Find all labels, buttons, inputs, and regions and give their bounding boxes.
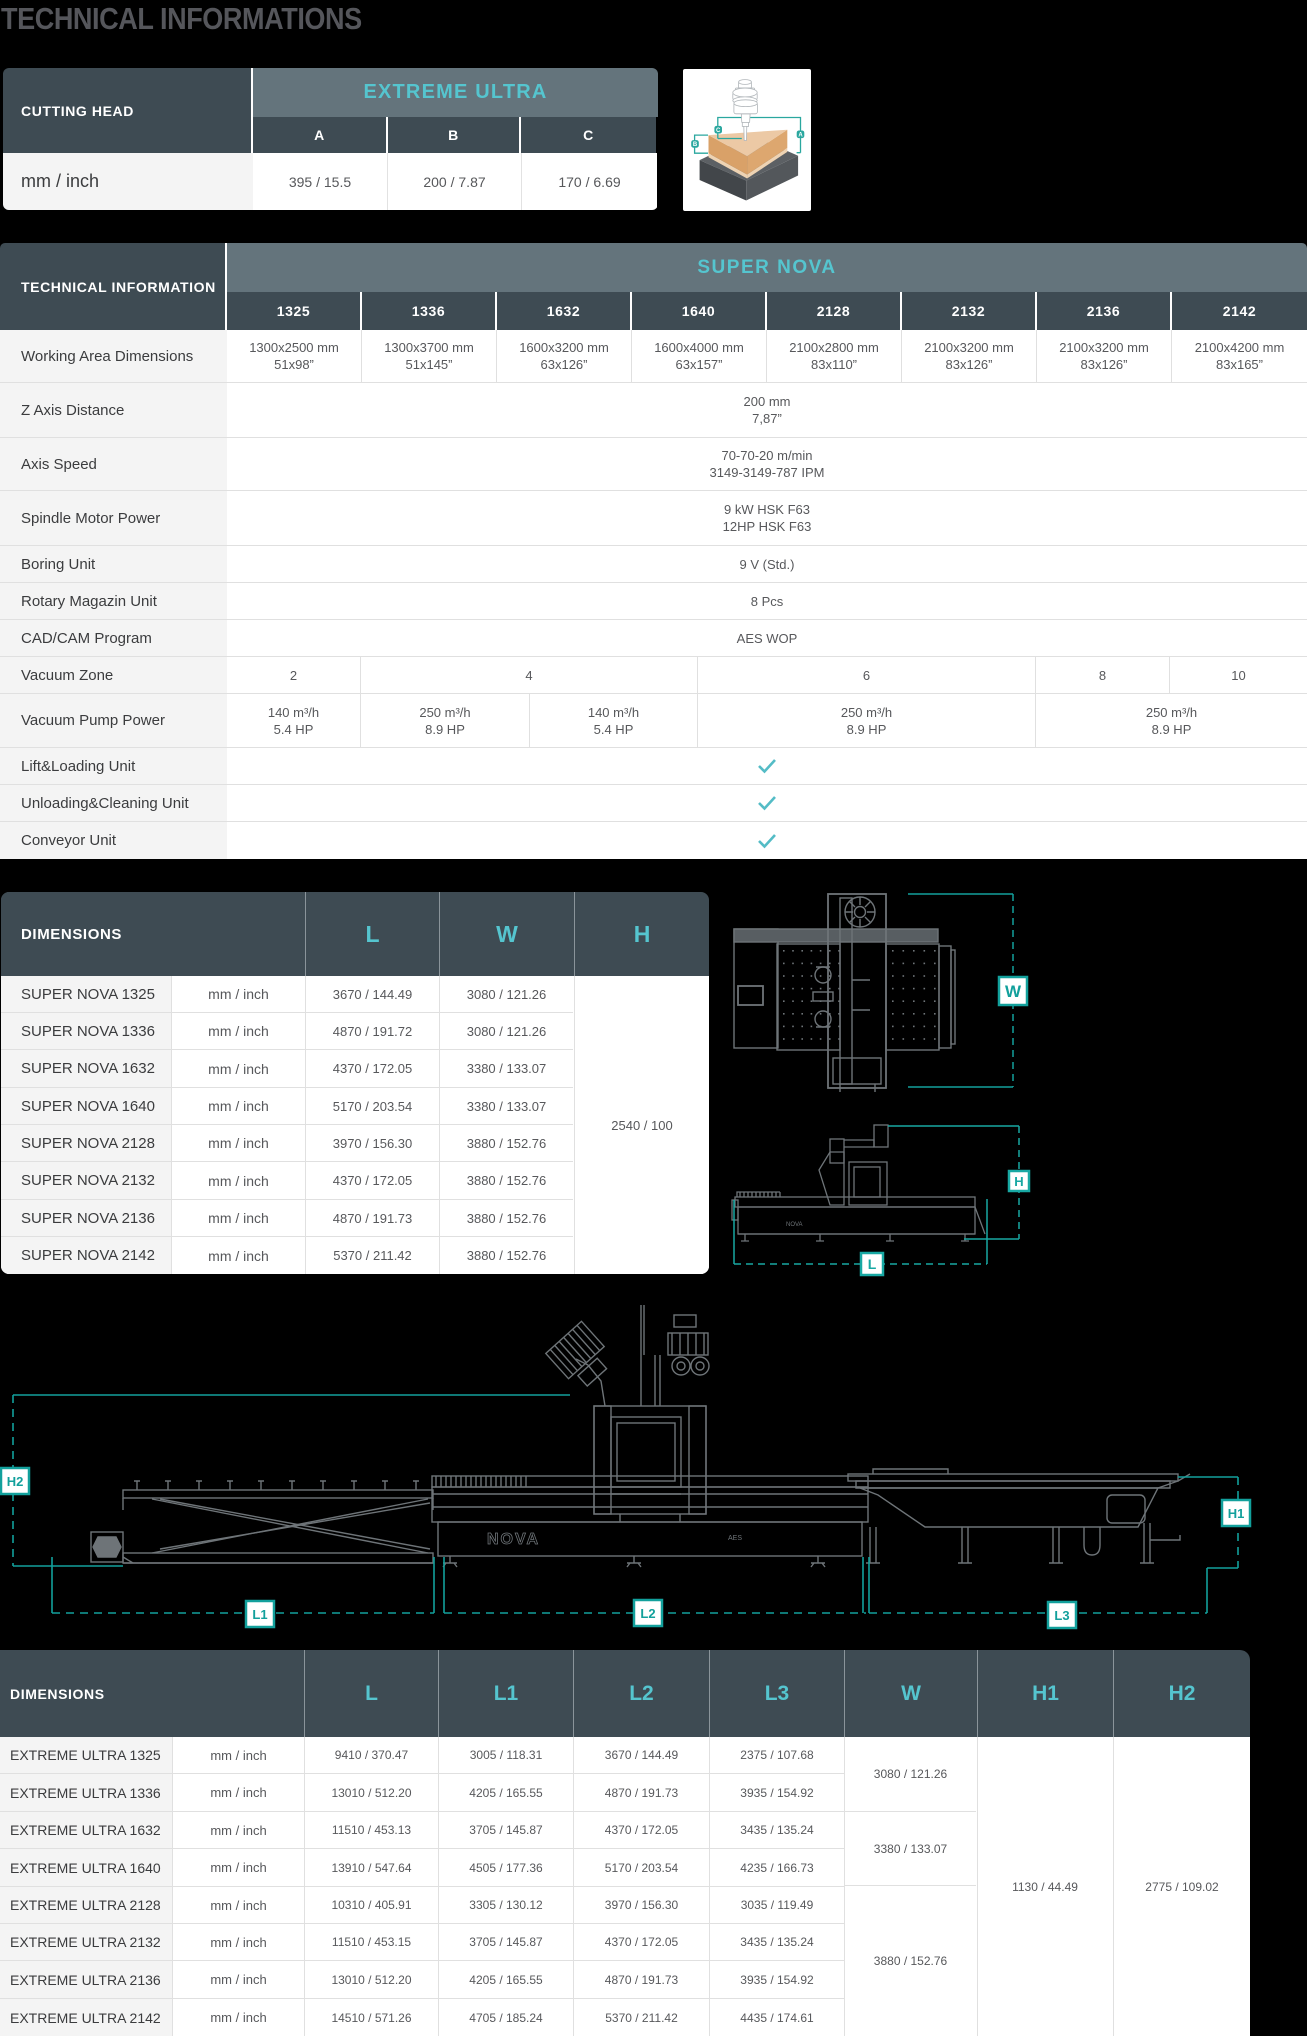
svg-text:AES: AES: [728, 1535, 742, 1542]
svg-text:L: L: [868, 1256, 877, 1272]
svg-text:H1: H1: [1228, 1506, 1245, 1521]
svg-text:NOVA: NOVA: [786, 1222, 803, 1228]
svg-text:W: W: [1005, 982, 1022, 1001]
svg-text:L1: L1: [252, 1607, 267, 1622]
svg-text:H2: H2: [7, 1474, 24, 1489]
svg-text:NOVA: NOVA: [487, 1531, 540, 1548]
svg-text:L3: L3: [1054, 1608, 1069, 1623]
svg-text:C: C: [716, 128, 721, 134]
svg-text:H: H: [1014, 1174, 1023, 1189]
svg-text:A: A: [798, 132, 803, 138]
svg-text:B: B: [693, 142, 698, 148]
svg-text:L2: L2: [640, 1606, 655, 1621]
